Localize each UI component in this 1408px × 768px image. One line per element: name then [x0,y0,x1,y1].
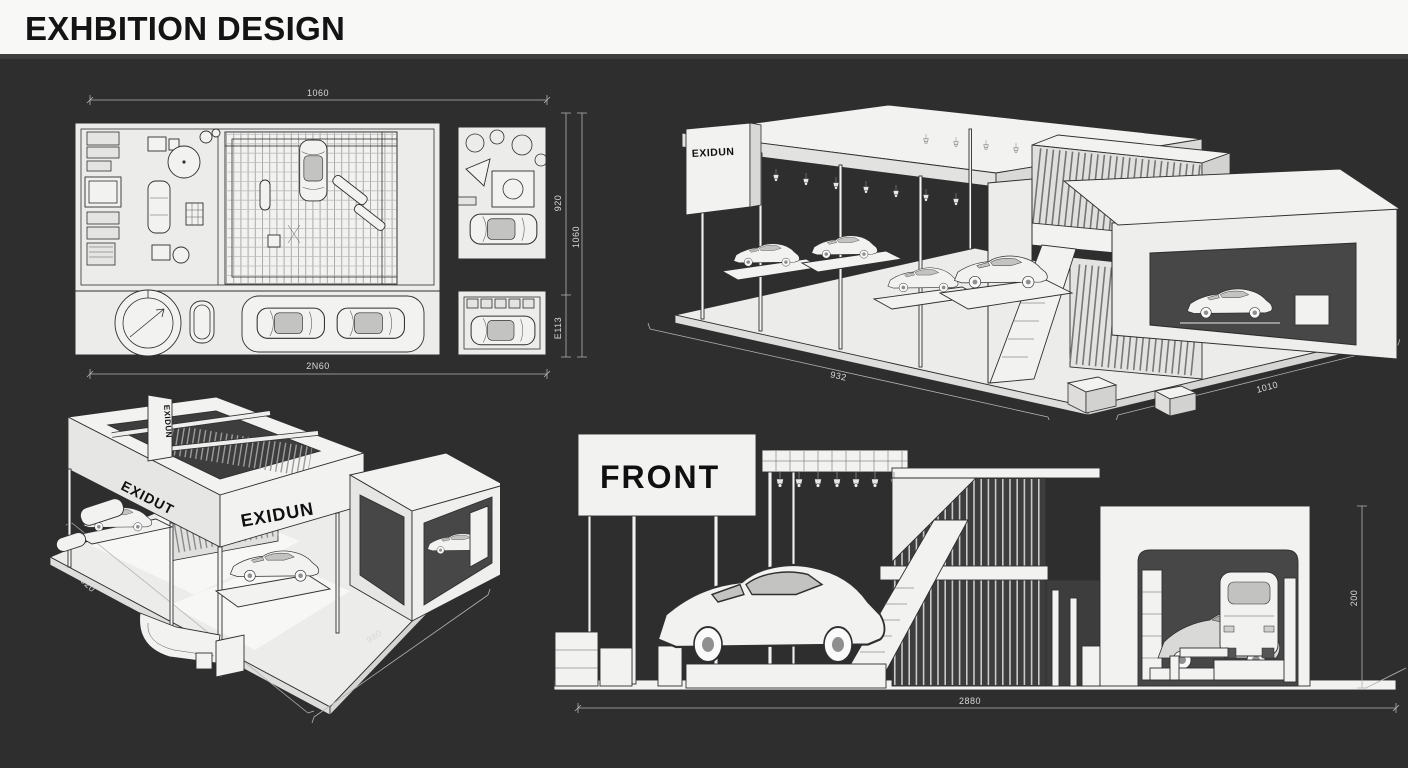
slide-header: EXHBITION DESIGN [0,0,1408,59]
perspective-view-alt: 920 980 EXIDUT EXIDUN EXIDUN [20,395,500,730]
perspective-view-main: 932 1010 EXIDUN [640,95,1400,420]
dim-label-right-upper: 920 [553,195,563,212]
dim-label-right: 200 [1349,590,1359,607]
dim-label-right-lower: E113 [553,317,563,339]
featured-car [658,565,886,688]
front-label: FRONT [600,459,720,495]
portal-volume [1064,169,1400,359]
right-portal-volume [350,453,500,621]
front-elevation-view: 2880 200 FRONT [540,420,1408,720]
gap-pylons [1046,580,1100,686]
left-cabinets [555,632,632,686]
dim-label-bottom: 2880 [959,696,981,706]
exidun-sign: EXIDUN [686,123,761,215]
dim-label-left: 932 [829,369,847,382]
dim-label-bottom: 2N60 [306,361,330,371]
slide-title: EXHBITION DESIGN [25,10,345,48]
right-volume [1100,506,1310,686]
floor-plan-view: 1060 2N60 920 E113 1060 [60,85,600,390]
dim-label-right-outer: 1060 [571,226,581,248]
dim-label-right: 1010 [1255,379,1279,394]
exidun-sign-label: EXIDUN [692,146,735,160]
floor-plan-drawing [75,123,547,356]
front-sign: FRONT [578,434,756,516]
dim-label-top: 1060 [307,88,329,98]
slat-wall [838,478,1048,686]
